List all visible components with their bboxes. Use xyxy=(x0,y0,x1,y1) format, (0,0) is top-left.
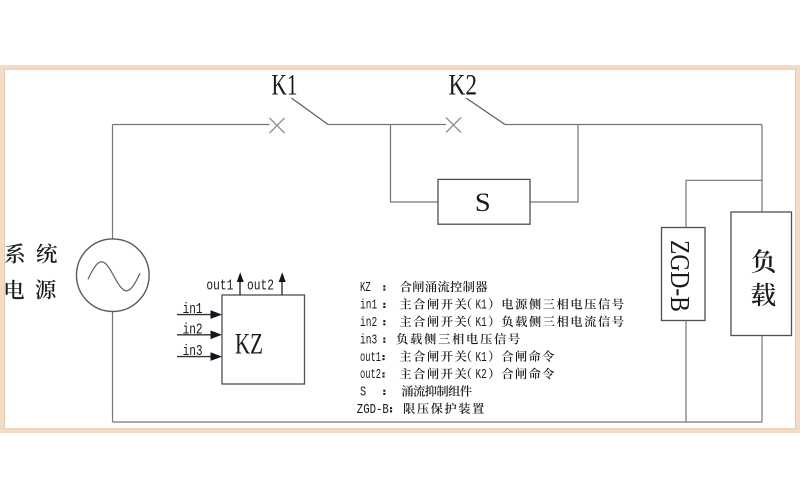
svg-text:in3: in3 xyxy=(360,333,377,348)
svg-text:K1: K1 xyxy=(476,299,487,314)
svg-text:K2: K2 xyxy=(449,68,478,101)
svg-text:in2: in2 xyxy=(183,322,203,338)
svg-text:in2: in2 xyxy=(360,316,377,331)
svg-text:in1: in1 xyxy=(360,299,377,314)
svg-text:S: S xyxy=(475,188,491,217)
svg-text:K1: K1 xyxy=(476,351,487,366)
svg-text:ZGD-B: ZGD-B xyxy=(357,403,389,418)
svg-text:S: S xyxy=(360,386,366,401)
svg-text:in1: in1 xyxy=(183,302,203,318)
svg-text:out2: out2 xyxy=(360,368,381,383)
svg-text:out1: out1 xyxy=(206,278,233,295)
svg-text:out1: out1 xyxy=(360,351,381,366)
svg-text:in3: in3 xyxy=(183,344,203,360)
svg-text:KZ: KZ xyxy=(235,328,263,361)
svg-text:ZGD-B: ZGD-B xyxy=(665,240,695,312)
svg-text:K2: K2 xyxy=(476,368,487,383)
svg-text:K1: K1 xyxy=(476,316,487,331)
svg-text:K1: K1 xyxy=(272,68,298,101)
svg-text:KZ: KZ xyxy=(360,281,371,296)
svg-text:out2: out2 xyxy=(247,278,274,295)
